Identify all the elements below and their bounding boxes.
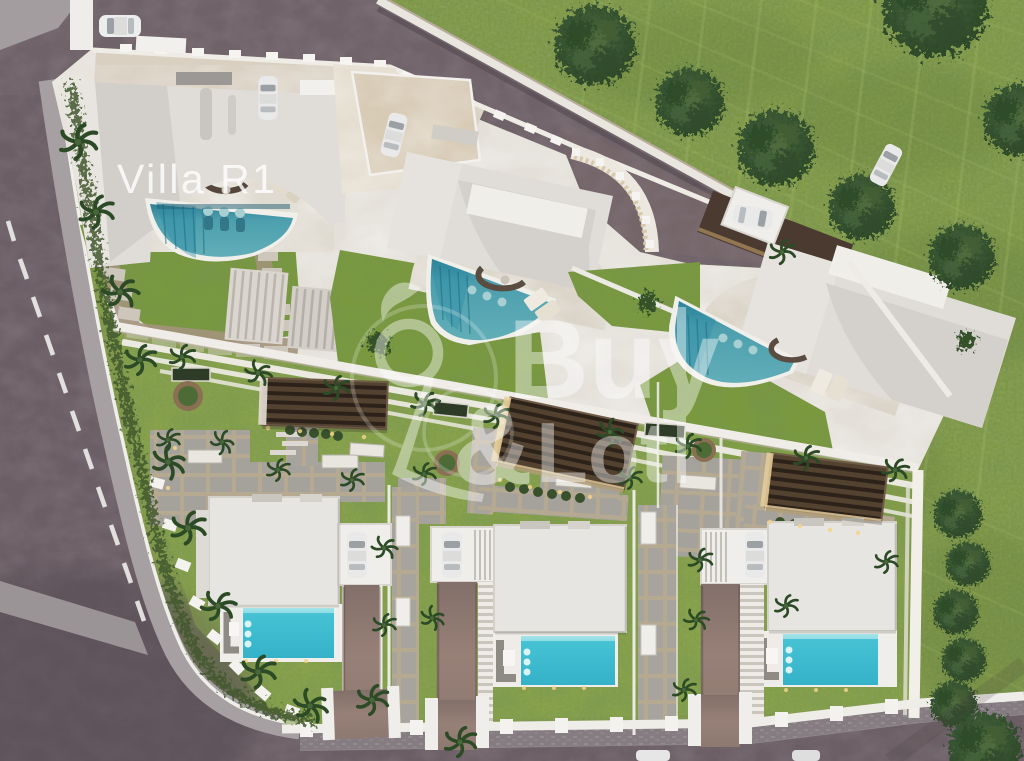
svg-text:&: & [452,383,533,508]
svg-text:Lot: Lot [536,406,668,501]
svg-text:Buy: Buy [508,297,720,422]
svg-text:Villa R1: Villa R1 [117,156,278,202]
